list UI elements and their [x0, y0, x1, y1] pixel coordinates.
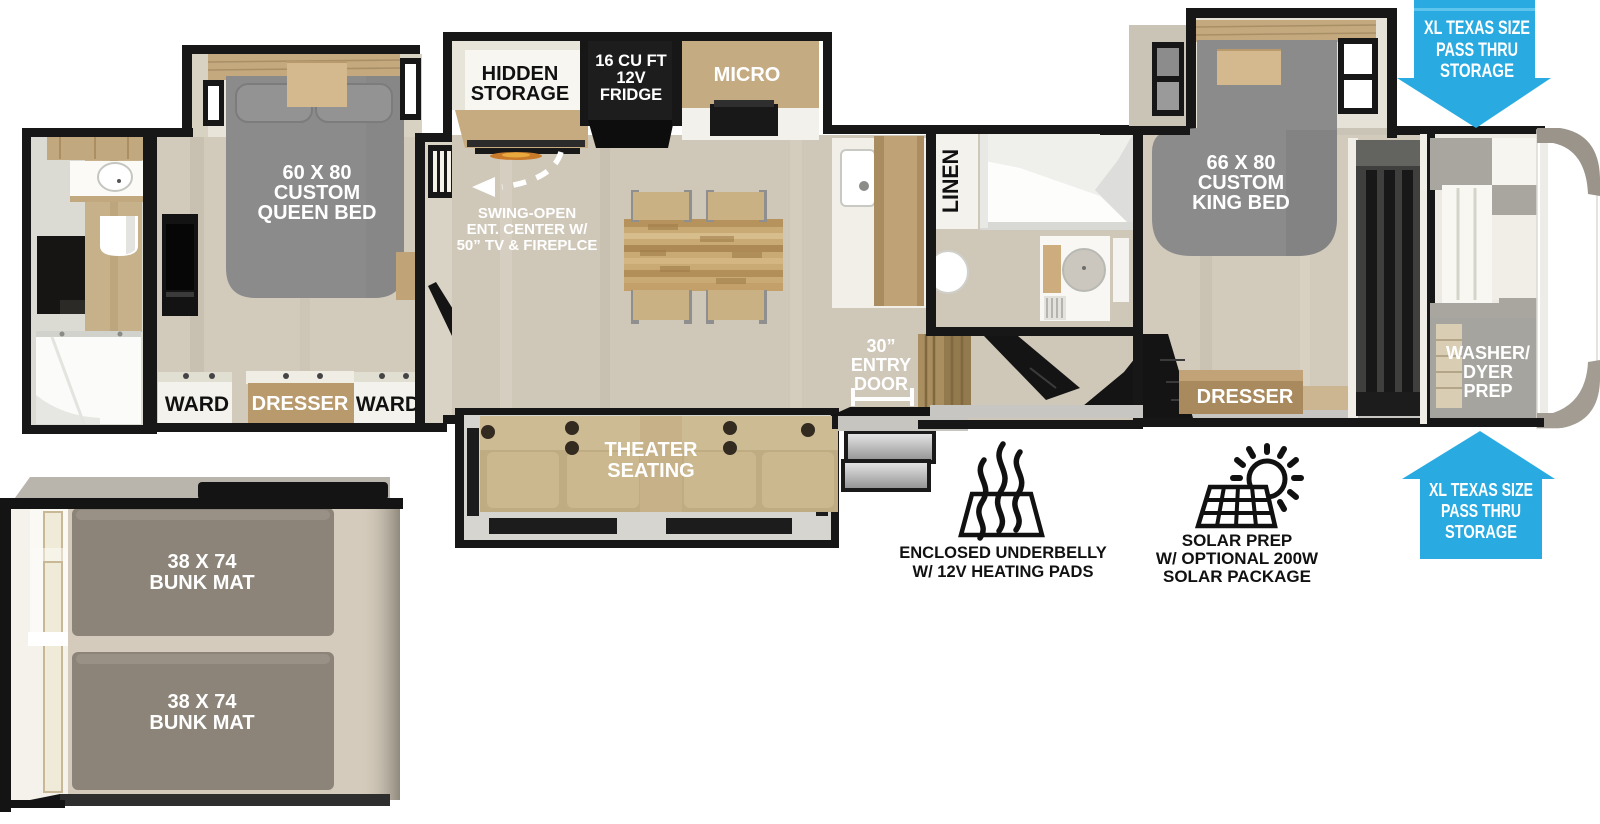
svg-text:HIDDEN: HIDDEN: [482, 63, 559, 85]
svg-text:WASHER/: WASHER/: [1446, 343, 1530, 363]
svg-text:ENT. CENTER W/: ENT. CENTER W/: [467, 221, 589, 238]
svg-text:STORAGE: STORAGE: [1445, 522, 1517, 542]
svg-text:SOLAR PREP: SOLAR PREP: [1182, 531, 1293, 550]
svg-text:BUNK MAT: BUNK MAT: [149, 572, 254, 594]
svg-text:60 X 80: 60 X 80: [283, 162, 352, 184]
svg-text:THEATER: THEATER: [605, 439, 699, 461]
svg-text:LINEN: LINEN: [938, 149, 963, 213]
svg-text:W/ 12V HEATING PADS: W/ 12V HEATING PADS: [913, 563, 1094, 581]
svg-text:38 X 74: 38 X 74: [168, 551, 238, 573]
svg-text:PREP: PREP: [1463, 381, 1512, 401]
svg-text:WARD: WARD: [356, 393, 420, 416]
svg-text:30”: 30”: [866, 336, 895, 356]
svg-text:WARD: WARD: [165, 393, 229, 416]
svg-text:ENTRY: ENTRY: [851, 355, 911, 375]
svg-text:DRESSER: DRESSER: [1197, 386, 1294, 408]
svg-text:CUSTOM: CUSTOM: [274, 182, 360, 204]
svg-text:XL TEXAS SIZE: XL TEXAS SIZE: [1429, 480, 1533, 500]
svg-text:SOLAR PACKAGE: SOLAR PACKAGE: [1163, 567, 1311, 586]
svg-text:KING BED: KING BED: [1192, 192, 1290, 214]
svg-text:16 CU FT: 16 CU FT: [595, 52, 667, 70]
svg-text:CUSTOM: CUSTOM: [1198, 172, 1284, 194]
svg-text:66 X 80: 66 X 80: [1207, 152, 1276, 174]
svg-text:QUEEN BED: QUEEN BED: [258, 202, 377, 224]
svg-text:BUNK MAT: BUNK MAT: [149, 712, 254, 734]
svg-text:12V: 12V: [616, 69, 645, 87]
svg-text:MICRO: MICRO: [714, 64, 781, 86]
svg-text:FRIDGE: FRIDGE: [600, 86, 662, 104]
svg-text:PASS THRU: PASS THRU: [1441, 501, 1521, 521]
svg-text:DYER: DYER: [1463, 362, 1513, 382]
svg-text:XL TEXAS SIZE: XL TEXAS SIZE: [1424, 18, 1530, 39]
svg-text:STORAGE: STORAGE: [1440, 61, 1514, 82]
svg-text:ENCLOSED UNDERBELLY: ENCLOSED UNDERBELLY: [899, 544, 1107, 562]
svg-text:W/ OPTIONAL 200W: W/ OPTIONAL 200W: [1156, 549, 1319, 568]
svg-text:DOOR: DOOR: [854, 374, 908, 394]
svg-text:38 X 74: 38 X 74: [168, 691, 238, 713]
svg-text:SEATING: SEATING: [607, 460, 694, 482]
svg-text:DRESSER: DRESSER: [252, 393, 349, 415]
svg-text:SWING-OPEN: SWING-OPEN: [478, 205, 576, 222]
svg-text:PASS THRU: PASS THRU: [1436, 40, 1518, 61]
svg-text:50” TV & FIREPLCE: 50” TV & FIREPLCE: [457, 237, 598, 254]
svg-text:STORAGE: STORAGE: [471, 83, 570, 105]
